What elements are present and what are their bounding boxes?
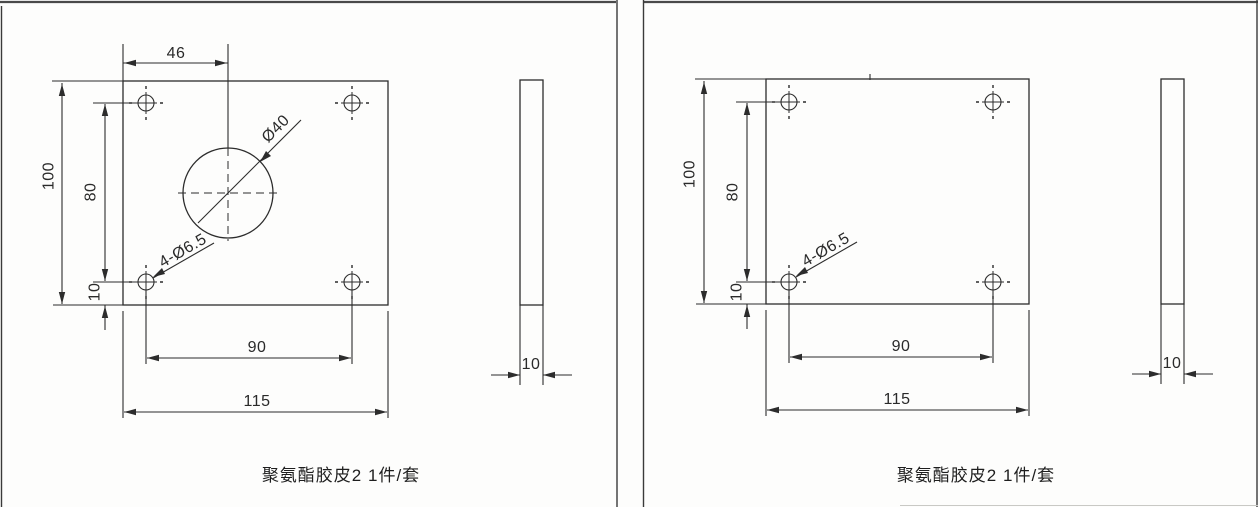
left-dim-hole-span-v: 80 [83,103,137,282]
dim-90-label: 90 [892,338,911,355]
right-dim-bottom-offset: 10 [729,283,751,329]
right-dim-height: 100 [682,81,708,303]
right-corner-holes-callout: 4-Ø6.5 [796,230,857,277]
label-corner-holes: 4-Ø6.5 [799,230,852,271]
right-part-caption: 聚氨酯胶皮2 1件/套 [897,466,1055,485]
dim-thickness-label: 10 [1163,355,1182,372]
left-dim-width: 115 [123,311,388,418]
left-part-caption: 聚氨酯胶皮2 1件/套 [262,466,420,485]
left-dim-top-width: 46 [123,44,228,81]
left-drawing: 46 100 80 10 [41,44,573,485]
dim-90-label: 90 [248,339,267,356]
left-dim-hole-span-h: 90 [146,290,352,364]
right-side-view: 10 [1132,79,1213,384]
dim-100-label: 100 [682,160,699,188]
left-dim-height: 100 [41,83,66,304]
dim-100-label: 100 [41,162,58,190]
left-corner-holes-callout: 4-Ø6.5 [153,231,214,278]
drawing-canvas: 46 100 80 10 [0,0,1260,507]
right-dim-hole-span-h: 90 [789,290,993,363]
dim-thickness-label: 10 [522,356,541,373]
left-center-hole-callout: Ø40 [198,112,301,223]
dim-80-label: 80 [725,183,742,202]
left-dim-bottom-offset: 10 [87,283,109,330]
drawing-sheet: 46 100 80 10 [0,0,1260,507]
label-corner-holes: 4-Ø6.5 [156,231,209,272]
dim-80-label: 80 [83,183,100,202]
dim-115-label: 115 [243,393,270,410]
right-dim-hole-span-v: 80 [725,102,782,282]
right-drawing: 100 80 10 90 [682,74,1214,485]
dim-46-label: 46 [167,45,186,62]
dim-10-label: 10 [729,283,746,302]
label-center-hole: Ø40 [259,112,293,146]
dim-115-label: 115 [883,391,910,408]
dim-10-label: 10 [87,283,104,302]
right-dim-width: 115 [766,310,1029,416]
left-side-view: 10 [491,80,572,385]
